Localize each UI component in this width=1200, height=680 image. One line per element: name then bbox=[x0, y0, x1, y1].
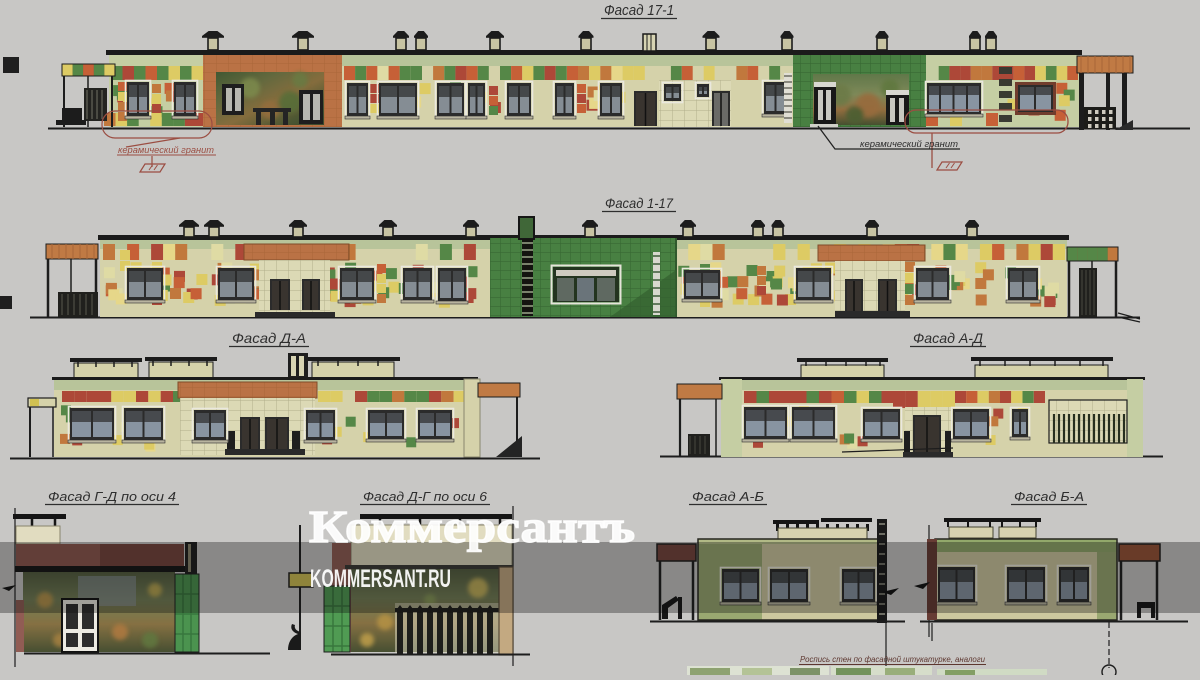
svg-text:Фасад Д-А: Фасад Д-А bbox=[232, 330, 306, 346]
svg-text:керамический гранит: керамический гранит bbox=[860, 139, 959, 149]
svg-text:Фасад А-Д: Фасад А-Д bbox=[913, 330, 983, 346]
svg-text:Фасад Г-Д по оси 4: Фасад Г-Д по оси 4 bbox=[48, 489, 176, 504]
svg-text:Роспись стен по фасадной штука: Роспись стен по фасадной штукатурке, ана… bbox=[800, 654, 985, 664]
svg-text:Фасад 1-17: Фасад 1-17 bbox=[605, 195, 674, 211]
svg-text:Фасад А-Б: Фасад А-Б bbox=[692, 489, 765, 504]
svg-text:Коммерсантъ: Коммерсантъ bbox=[309, 501, 635, 552]
svg-text:KOMMERSANT.RU: KOMMERSANT.RU bbox=[310, 565, 451, 593]
svg-text:Фасад Б-А: Фасад Б-А bbox=[1014, 489, 1084, 504]
svg-text:керамический гранит: керамический гранит bbox=[118, 145, 215, 155]
svg-text:Фасад 17-1: Фасад 17-1 bbox=[604, 2, 674, 19]
